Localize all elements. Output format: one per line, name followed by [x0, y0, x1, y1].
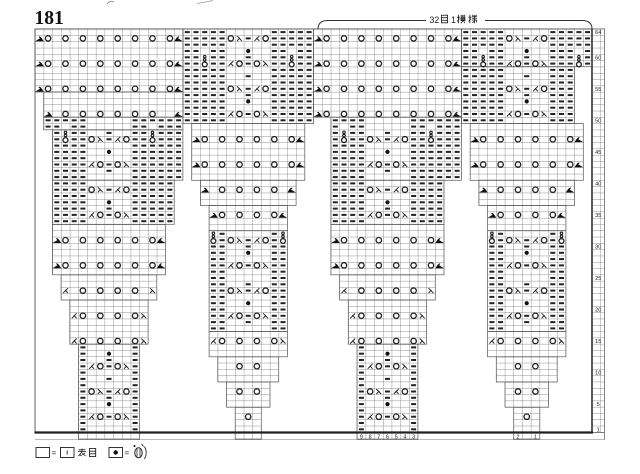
svg-text:64: 64 [595, 30, 601, 36]
svg-text:1: 1 [451, 15, 456, 25]
svg-text:9: 9 [360, 434, 363, 440]
svg-text:7: 7 [377, 434, 380, 440]
svg-text:30: 30 [595, 245, 601, 251]
svg-text:45: 45 [595, 150, 601, 156]
svg-text:4: 4 [403, 434, 406, 440]
svg-text:1: 1 [597, 427, 600, 433]
svg-text:2: 2 [517, 434, 520, 440]
svg-text:35: 35 [595, 213, 601, 219]
svg-text:181: 181 [35, 8, 64, 29]
svg-text:5: 5 [597, 402, 600, 408]
svg-text:6: 6 [386, 434, 389, 440]
svg-text:50: 50 [595, 118, 601, 124]
svg-text:15: 15 [595, 339, 601, 345]
svg-text:55: 55 [595, 87, 601, 93]
svg-text:20: 20 [595, 308, 601, 314]
svg-text:8: 8 [369, 434, 372, 440]
svg-text:25: 25 [595, 276, 601, 282]
svg-text:10: 10 [595, 371, 601, 377]
svg-text:3: 3 [412, 434, 415, 440]
svg-text:40: 40 [595, 181, 601, 187]
svg-text:5: 5 [395, 434, 398, 440]
svg-text:=: = [125, 449, 130, 458]
svg-text:=: = [52, 449, 57, 458]
svg-text:32: 32 [430, 15, 440, 25]
svg-text:1: 1 [534, 434, 537, 440]
svg-text:60: 60 [595, 55, 601, 61]
